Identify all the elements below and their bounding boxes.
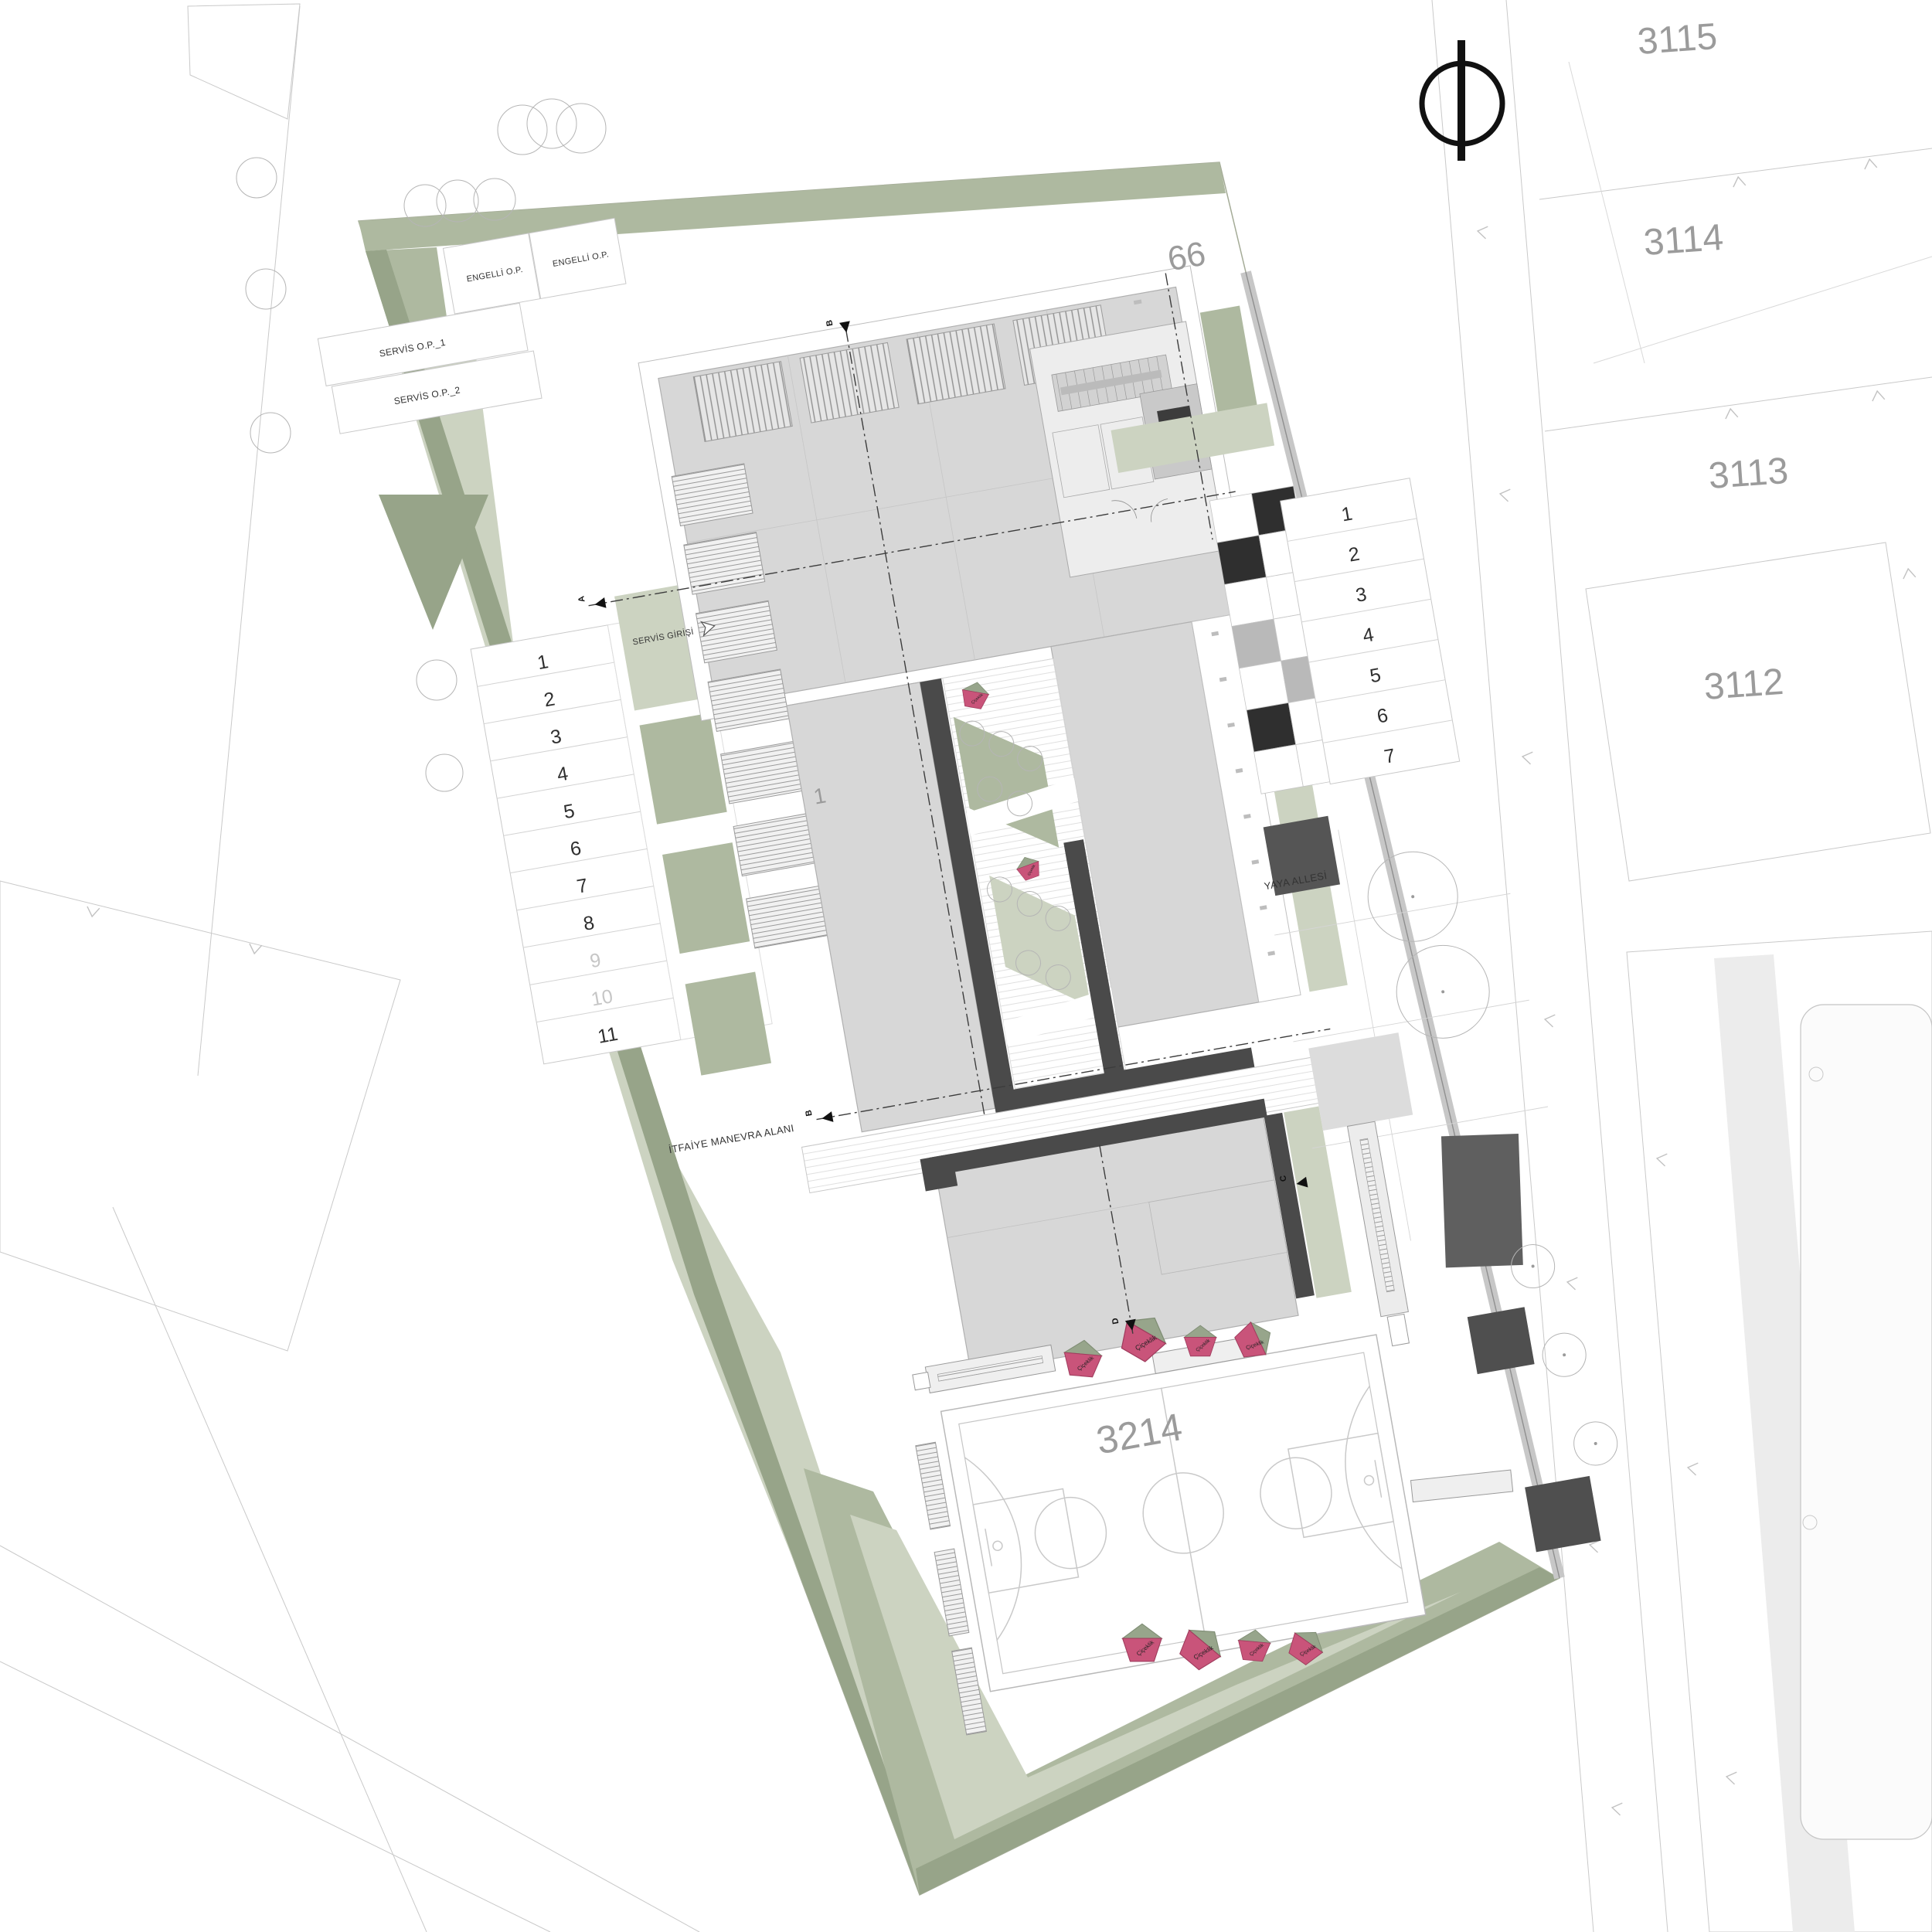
building-footprint-bottom-right: [1801, 1005, 1932, 1839]
road-edge-right-outer: [1506, 0, 1668, 1932]
site-plan-canvas: 3115 3114 3113 3112: [0, 0, 1932, 1932]
parcel-number-3114: 3114: [1642, 217, 1725, 264]
road-edge-right-inner: [1432, 0, 1594, 1932]
parcel-number-3115: 3115: [1636, 16, 1719, 63]
block-number-66: 66: [1165, 235, 1209, 279]
alley-dark-patch: [1441, 1134, 1523, 1267]
alley-gray-patch: [1308, 1032, 1413, 1131]
parcel-line-3114: [1545, 377, 1932, 431]
parcel-outline-3112: [1586, 543, 1930, 881]
road-edge-left: [198, 6, 300, 1076]
alley-dark-square-2: [1525, 1476, 1600, 1552]
road-edge-bottom-left-1: [0, 1546, 699, 1932]
parcel-number-3112: 3112: [1702, 662, 1785, 708]
parcel-outline-left: [0, 881, 400, 1351]
parcel-outline-top-left: [188, 4, 300, 119]
bottom-block-wall-notch: [920, 1154, 958, 1192]
parcel-line-3115: [1539, 148, 1932, 199]
parking-left-10: 10: [590, 985, 614, 1010]
parcel-faint-line-2: [1569, 62, 1645, 363]
parcel-faint-line-1: [1594, 257, 1932, 363]
north-arrow: [1422, 40, 1502, 161]
alley-dark-square-1: [1468, 1307, 1535, 1374]
road-edge-bottom-left-3: [113, 1207, 427, 1932]
site-plan-drawing: 3115 3114 3113 3112: [0, 0, 1932, 1932]
road-edge-bottom-left-2: [0, 1662, 550, 1932]
parcel-number-3113: 3113: [1707, 451, 1790, 497]
parking-left-11: 11: [596, 1023, 619, 1048]
